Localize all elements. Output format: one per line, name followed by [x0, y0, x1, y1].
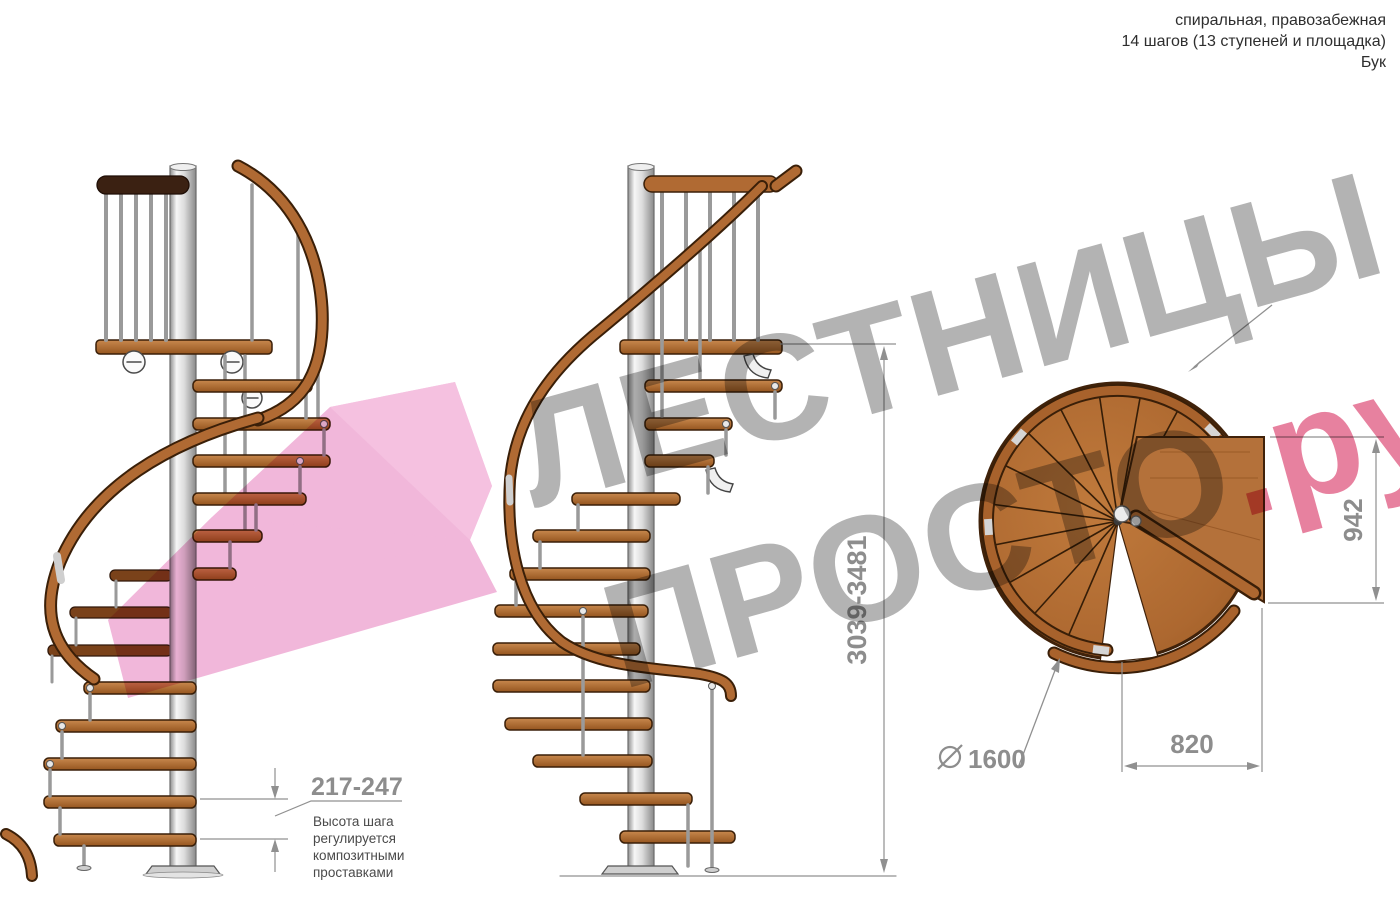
dim-diameter: 1600: [938, 658, 1060, 774]
step-note-4: проставками: [313, 865, 393, 880]
step-count-label: 14 шагов (13 ступеней и площадка): [1122, 31, 1387, 52]
dim-diameter-label: 1600: [968, 744, 1026, 774]
dim-total-height: 3039-3481: [780, 344, 896, 873]
dim-plan-depth-label: 942: [1338, 498, 1368, 541]
stair-type-label: спиральная, правозабежная: [1122, 10, 1387, 31]
dim-step-height-label: 217-247: [311, 773, 403, 801]
step-note-1: Высота шага: [313, 814, 394, 829]
material-label: Бук: [1122, 52, 1387, 73]
step-note-2: регулируется: [313, 831, 396, 846]
drawing-page: 3039-3481 942 820 1600: [0, 0, 1400, 914]
dim-landing-width-label: 820: [1170, 729, 1213, 759]
plan-view: [980, 305, 1272, 668]
dim-total-height-label: 3039-3481: [842, 535, 872, 664]
title-block: спиральная, правозабежная 14 шагов (13 с…: [1122, 10, 1387, 73]
step-note-3: композитными: [313, 848, 404, 863]
dim-step-height: 217-247 Высота шага регулируется компози…: [200, 768, 404, 880]
dim-plan-depth: 942: [1268, 437, 1384, 603]
staircase-technical-drawing: 3039-3481 942 820 1600: [0, 0, 1400, 914]
top-leader-arrow: [1188, 305, 1272, 372]
side-view-middle: [493, 164, 896, 877]
